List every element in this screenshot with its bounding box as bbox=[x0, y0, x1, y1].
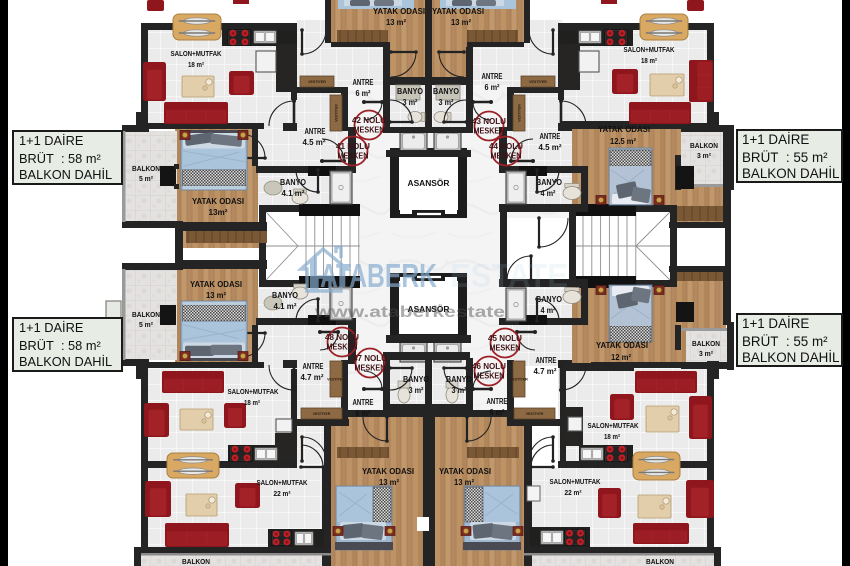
svg-text:YATAK ODASI: YATAK ODASI bbox=[596, 340, 648, 350]
svg-text:47 NOLU: 47 NOLU bbox=[353, 354, 387, 363]
svg-text:ANTRE: ANTRE bbox=[482, 71, 503, 81]
svg-text:ANTRE: ANTRE bbox=[303, 361, 324, 371]
svg-text:SALON+MUTFAK: SALON+MUTFAK bbox=[588, 421, 640, 430]
svg-text:BALKON: BALKON bbox=[690, 141, 718, 150]
svg-text:VESTİYER: VESTİYER bbox=[313, 412, 331, 416]
svg-text:MESKEN: MESKEN bbox=[338, 152, 369, 161]
svg-text:YATAK ODASI: YATAK ODASI bbox=[362, 466, 414, 476]
svg-text:ANTRE: ANTRE bbox=[353, 397, 374, 407]
svg-text:BALKON DAHİL: BALKON DAHİL bbox=[19, 354, 112, 369]
svg-text:44 NOLU: 44 NOLU bbox=[489, 142, 523, 151]
svg-text:ASANSÖR: ASANSÖR bbox=[408, 178, 451, 188]
svg-text:VESTİYER: VESTİYER bbox=[327, 377, 345, 381]
svg-text:BALKON DAHİL: BALKON DAHİL bbox=[742, 166, 840, 181]
svg-text:13 m²: 13 m² bbox=[379, 478, 399, 487]
svg-text:ANTRE: ANTRE bbox=[487, 396, 508, 406]
svg-text:BANYO: BANYO bbox=[397, 86, 423, 96]
svg-text:18 m²: 18 m² bbox=[641, 56, 657, 65]
svg-text:6 m²: 6 m² bbox=[356, 89, 371, 98]
svg-text:VESTİYER: VESTİYER bbox=[529, 80, 547, 84]
svg-text:BALKON DAHİL: BALKON DAHİL bbox=[742, 350, 840, 365]
svg-text:5 m²: 5 m² bbox=[139, 176, 154, 183]
svg-text:46 NOLU: 46 NOLU bbox=[472, 362, 506, 371]
svg-text:SALON+MUTFAK: SALON+MUTFAK bbox=[228, 387, 280, 396]
svg-text:ANTRE: ANTRE bbox=[540, 131, 561, 141]
svg-text:4.7 m²: 4.7 m² bbox=[534, 367, 557, 376]
svg-text:12.5 m²: 12.5 m² bbox=[610, 137, 636, 146]
svg-text:13 m²: 13 m² bbox=[454, 478, 474, 487]
svg-text:6 m²: 6 m² bbox=[485, 83, 500, 92]
svg-text:3 m²: 3 m² bbox=[409, 386, 424, 395]
svg-text:SALON+MUTFAK: SALON+MUTFAK bbox=[257, 478, 309, 487]
svg-text:SALON+MUTFAK: SALON+MUTFAK bbox=[624, 45, 676, 54]
svg-text:18 m²: 18 m² bbox=[188, 60, 204, 69]
svg-text:ESTATE: ESTATE bbox=[450, 257, 568, 294]
svg-text:ANTRE: ANTRE bbox=[536, 355, 557, 365]
svg-text:www.ataberkestate: www.ataberkestate bbox=[314, 304, 505, 321]
svg-text:13 m²: 13 m² bbox=[386, 18, 406, 27]
svg-text:YATAK ODASI: YATAK ODASI bbox=[439, 466, 491, 476]
svg-text:18 m²: 18 m² bbox=[604, 432, 620, 441]
svg-text:1+1 DAİRE: 1+1 DAİRE bbox=[742, 132, 809, 147]
svg-text:22 m²: 22 m² bbox=[274, 489, 291, 498]
svg-text:ANTRE: ANTRE bbox=[353, 77, 374, 87]
svg-text:3 m²: 3 m² bbox=[697, 153, 712, 160]
svg-text:MESKEN: MESKEN bbox=[490, 344, 521, 353]
svg-text:ANTRE: ANTRE bbox=[305, 126, 326, 136]
svg-text:22 m²: 22 m² bbox=[565, 488, 582, 497]
svg-text:MESKEN: MESKEN bbox=[327, 343, 358, 352]
svg-text:MESKEN: MESKEN bbox=[355, 364, 386, 373]
svg-text:4.5 m²: 4.5 m² bbox=[539, 143, 562, 152]
svg-text:13m²: 13m² bbox=[209, 208, 228, 217]
svg-text:MESKEN: MESKEN bbox=[474, 127, 505, 136]
svg-text:BALKON DAHİL: BALKON DAHİL bbox=[19, 167, 112, 182]
svg-text:4 m²: 4 m² bbox=[541, 189, 556, 198]
svg-text:YATAK ODASI: YATAK ODASI bbox=[192, 196, 244, 206]
svg-text:43 NOLU: 43 NOLU bbox=[472, 117, 506, 126]
svg-text:YATAK ODASI: YATAK ODASI bbox=[190, 279, 242, 289]
svg-text:4.1 m²: 4.1 m² bbox=[282, 189, 305, 198]
svg-text:VESTİYER: VESTİYER bbox=[308, 80, 326, 84]
svg-text:1+1 DAİRE: 1+1 DAİRE bbox=[19, 133, 83, 148]
svg-text:4.1 m²: 4.1 m² bbox=[274, 302, 297, 311]
svg-text:BRÜT : 55 m²: BRÜT : 55 m² bbox=[742, 334, 828, 349]
svg-text:5 m²: 5 m² bbox=[139, 322, 154, 329]
svg-text:BRÜT : 58 m²: BRÜT : 58 m² bbox=[19, 338, 102, 353]
svg-text:MESKEN: MESKEN bbox=[354, 126, 385, 135]
svg-text:BANYO: BANYO bbox=[536, 177, 562, 187]
svg-text:13 m²: 13 m² bbox=[451, 18, 471, 27]
svg-text:ATABERK: ATABERK bbox=[320, 257, 437, 294]
svg-text:VESTİYER: VESTİYER bbox=[510, 377, 528, 381]
svg-text:4.7 m²: 4.7 m² bbox=[301, 373, 324, 382]
svg-text:SALON+MUTFAK: SALON+MUTFAK bbox=[550, 477, 602, 486]
svg-text:SALON+MUTFAK: SALON+MUTFAK bbox=[171, 49, 223, 58]
svg-text:12 m²: 12 m² bbox=[611, 353, 631, 362]
svg-text:VESTİYER: VESTİYER bbox=[334, 104, 338, 122]
svg-text:BRÜT : 55 m²: BRÜT : 55 m² bbox=[742, 150, 828, 165]
svg-text:VESTİYER: VESTİYER bbox=[526, 412, 544, 416]
svg-text:4 m²: 4 m² bbox=[541, 306, 556, 315]
svg-text:BALKON: BALKON bbox=[646, 557, 674, 566]
svg-text:13 m²: 13 m² bbox=[206, 291, 226, 300]
svg-text:BALKON: BALKON bbox=[132, 310, 160, 319]
svg-text:6 m²: 6 m² bbox=[356, 409, 371, 418]
svg-text:YATAK ODASI: YATAK ODASI bbox=[598, 124, 650, 134]
svg-text:4.5 m²: 4.5 m² bbox=[303, 138, 326, 147]
svg-text:48 NOLU: 48 NOLU bbox=[325, 333, 359, 342]
svg-text:BALKON: BALKON bbox=[692, 339, 720, 348]
svg-text:45 NOLU: 45 NOLU bbox=[488, 334, 522, 343]
svg-text:BALKON: BALKON bbox=[182, 557, 210, 566]
svg-text:1+1 DAİRE: 1+1 DAİRE bbox=[742, 316, 809, 331]
svg-text:42 NOLU: 42 NOLU bbox=[352, 116, 386, 125]
svg-text:BALKON: BALKON bbox=[132, 164, 160, 173]
svg-text:VESTİYER: VESTİYER bbox=[517, 104, 521, 122]
svg-text:1+1 DAİRE: 1+1 DAİRE bbox=[19, 320, 83, 335]
svg-text:3 m²: 3 m² bbox=[699, 351, 714, 358]
svg-text:BRÜT : 58 m²: BRÜT : 58 m² bbox=[19, 151, 102, 166]
svg-text:18 m²: 18 m² bbox=[244, 398, 260, 407]
svg-text:YATAK ODASI: YATAK ODASI bbox=[373, 6, 425, 16]
svg-text:YATAK ODASI: YATAK ODASI bbox=[432, 6, 484, 16]
svg-text:BANYO: BANYO bbox=[433, 86, 459, 96]
svg-text:MESKEN: MESKEN bbox=[491, 152, 522, 161]
svg-text:41 NOLU: 41 NOLU bbox=[336, 142, 370, 151]
svg-text:6 m²: 6 m² bbox=[490, 408, 505, 417]
svg-text:BANYO: BANYO bbox=[272, 290, 298, 300]
